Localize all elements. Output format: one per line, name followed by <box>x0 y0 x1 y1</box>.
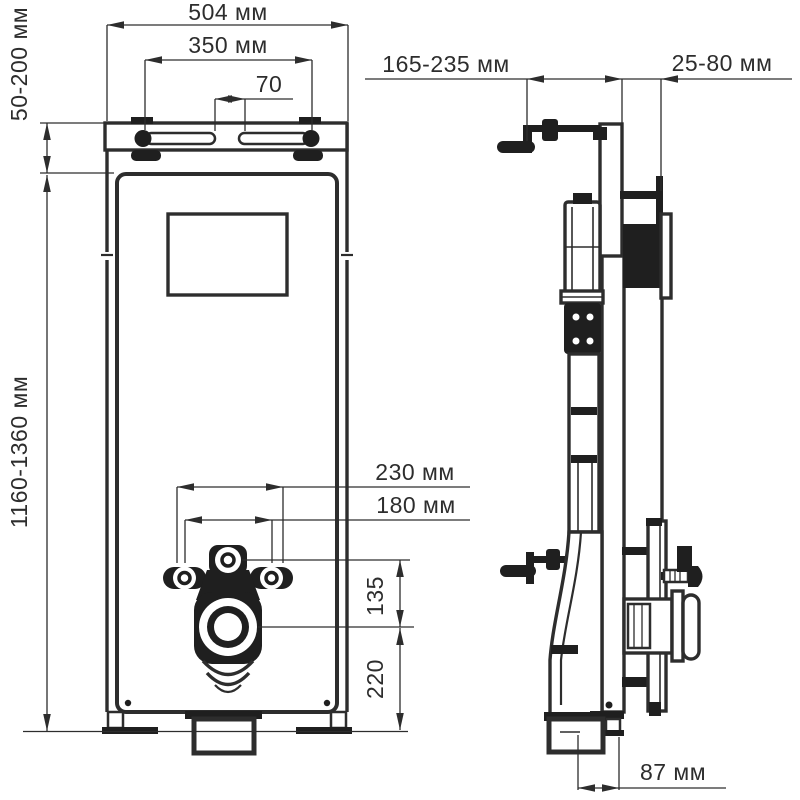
top-bracket-arm <box>526 125 600 132</box>
hanger-bolt-left <box>135 130 152 147</box>
dim-top-bracket-range: 50-200 мм <box>6 7 114 173</box>
dim-hanger-bolt-spacing: 350 мм <box>145 32 312 130</box>
dim-label-350: 350 мм <box>188 32 267 58</box>
hanger-slot-right <box>239 133 308 144</box>
dim-label-50-200: 50-200 мм <box>6 7 32 121</box>
profile-bolt <box>606 702 613 709</box>
foot-left-plate <box>102 727 158 734</box>
rear-rail-cap <box>646 518 662 526</box>
dim-label-165-235: 165-235 мм <box>382 51 509 77</box>
horn-disc <box>683 595 699 659</box>
foot-right-plate <box>296 727 352 734</box>
dim-label-87: 87 мм <box>640 759 706 785</box>
side-view: 165-235 мм 25-80 мм 87 мм <box>365 50 792 792</box>
spigot-box <box>194 719 254 753</box>
front-view: 504 мм 350 мм 70 50-200 мм <box>6 0 470 753</box>
top-bracket-clamp <box>542 119 558 141</box>
mid-bracket-clamp <box>546 549 560 570</box>
valve-dot-1 <box>573 314 580 321</box>
hanger-tab-right <box>299 117 321 124</box>
top-bracket-paddle <box>497 141 535 153</box>
dim-label-25-80: 25-80 мм <box>672 50 773 76</box>
profile-upper <box>600 124 622 264</box>
dim-label-180: 180 мм <box>376 492 455 518</box>
wall-mount-plate <box>623 224 662 288</box>
frame-bolt-right <box>324 700 330 706</box>
dim-label-220: 220 <box>362 659 388 699</box>
cistern-body <box>565 202 600 302</box>
flush-channel <box>569 354 599 532</box>
hanger-tab-left <box>131 117 153 124</box>
hanger-slot-left <box>146 133 215 144</box>
cistern-cap <box>573 193 592 204</box>
rear-rail-tip <box>649 702 661 716</box>
hanger-lug-right <box>293 150 323 161</box>
rear-rung-upper <box>622 547 649 555</box>
outlet-box <box>549 719 603 752</box>
supply-valve-cone <box>688 566 703 587</box>
valve-dot-2 <box>587 314 594 321</box>
fixing-stud-left-core <box>179 573 190 584</box>
wall-backing-plate <box>661 214 671 298</box>
flush-valve-block <box>564 303 601 354</box>
elbow-band <box>551 645 578 654</box>
rear-rung-lower <box>622 677 648 687</box>
foot-left-stem <box>108 712 123 728</box>
frame-bolt-left <box>125 700 131 706</box>
channel-rung-1 <box>571 407 597 415</box>
foot-right-stem <box>331 712 346 728</box>
hanger-bolt-right <box>303 130 320 147</box>
horn-inner <box>628 604 650 648</box>
profile-lower <box>602 256 624 712</box>
top-fixing-block <box>593 127 607 140</box>
dim-label-135: 135 <box>362 576 388 616</box>
dim-drain-height: 220 <box>362 628 404 730</box>
mid-bracket-paddle <box>500 565 536 577</box>
drain-bore <box>214 613 242 641</box>
dim-frame-height-range: 1160-1360 мм <box>6 175 51 731</box>
fixing-stud-right-core <box>266 573 277 584</box>
hanger-lug-left <box>131 150 161 161</box>
channel-rung-2 <box>571 455 597 463</box>
dim-depth-range: 165-235 мм 25-80 мм <box>365 50 792 191</box>
access-window <box>168 214 287 295</box>
dim-label-230: 230 мм <box>375 459 454 485</box>
drawing-canvas: 504 мм 350 мм 70 50-200 мм <box>0 0 800 800</box>
dim-label-1160-1360: 1160-1360 мм <box>6 376 32 528</box>
valve-dot-4 <box>587 338 594 345</box>
technical-drawing: 504 мм 350 мм 70 50-200 мм <box>0 0 800 800</box>
dim-label-504: 504 мм <box>188 0 267 25</box>
water-inlet-core <box>222 554 234 566</box>
dim-label-70: 70 <box>256 71 283 97</box>
valve-dot-3 <box>573 338 580 345</box>
